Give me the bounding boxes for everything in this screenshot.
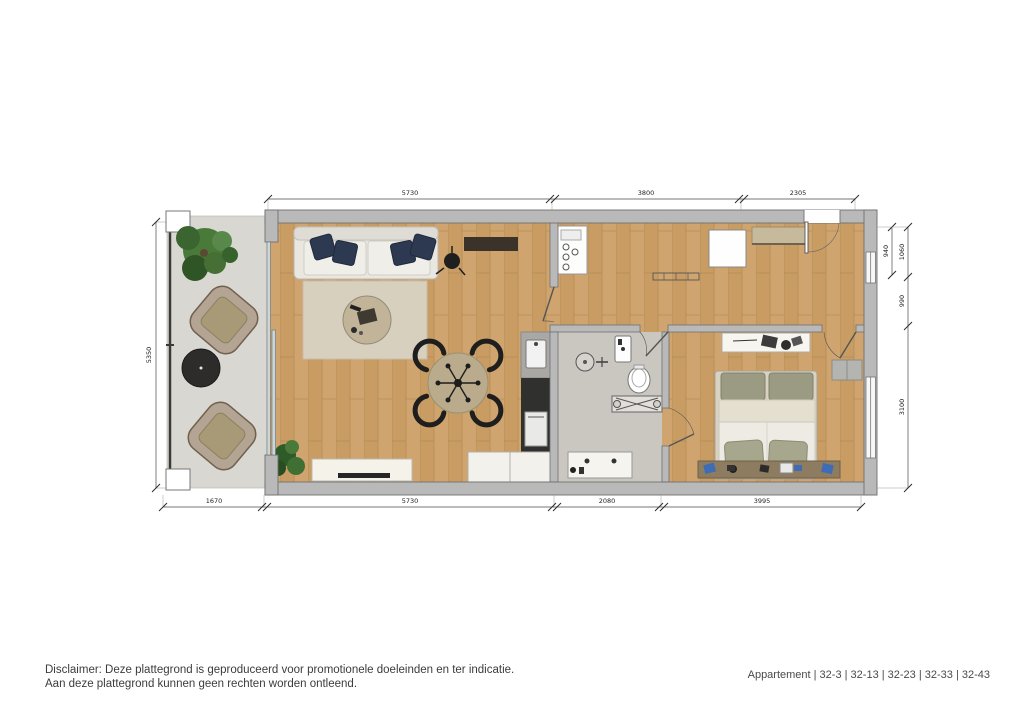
bathroom-sink [615,336,631,362]
window [866,377,876,458]
floor-plan: 5730 3800 2305 1670 5730 2080 3995 5350 … [0,0,1024,724]
apartment-label: Appartement | 32-3 | 32-13 | 32-23 | 32-… [670,669,990,681]
bed-bench [698,461,840,478]
coffee-table [343,296,391,344]
dim-right-outer-2: 990 [898,295,906,307]
dim-top-2: 3800 [638,189,655,197]
dim-right-outer-1: 1060 [898,244,906,261]
disclaimer-line-1: Disclaimer: Deze plattegrond is geproduc… [45,663,514,677]
floorplan-page: 5730 3800 2305 1670 5730 2080 3995 5350 … [0,0,1024,724]
desk [722,333,810,352]
headboard-cushion [769,373,813,400]
dim-bottom-1: 1670 [206,497,223,505]
disclaimer-text: Disclaimer: Deze plattegrond is geproduc… [45,663,514,691]
dim-right-outer-3: 3100 [898,399,906,416]
dim-top-1: 5730 [402,189,419,197]
hall-shelf [752,227,806,244]
balcony [166,211,267,490]
dim-top-3: 2305 [790,189,807,197]
dim-bottom-3: 2080 [599,497,616,505]
hall-cabinet [709,230,746,267]
disclaimer-line-2: Aan deze plattegrond kunnen geen rechten… [45,677,514,691]
cooktop [557,226,587,274]
dim-bottom-4: 3995 [754,497,771,505]
sideboard [464,237,518,251]
railing-post [166,469,190,490]
dim-bottom-2: 5730 [402,497,419,505]
headboard-cushion [721,373,765,400]
bath-bench [612,396,662,412]
vanity [568,452,632,478]
tv-cabinet [312,459,412,481]
dim-left-1: 5350 [145,347,153,364]
dim-right-inner-1: 940 [882,245,890,257]
window [866,252,876,283]
balcony-table [182,349,220,387]
dining-table [428,353,488,413]
wardrobe [832,360,862,380]
sofa [294,227,438,279]
